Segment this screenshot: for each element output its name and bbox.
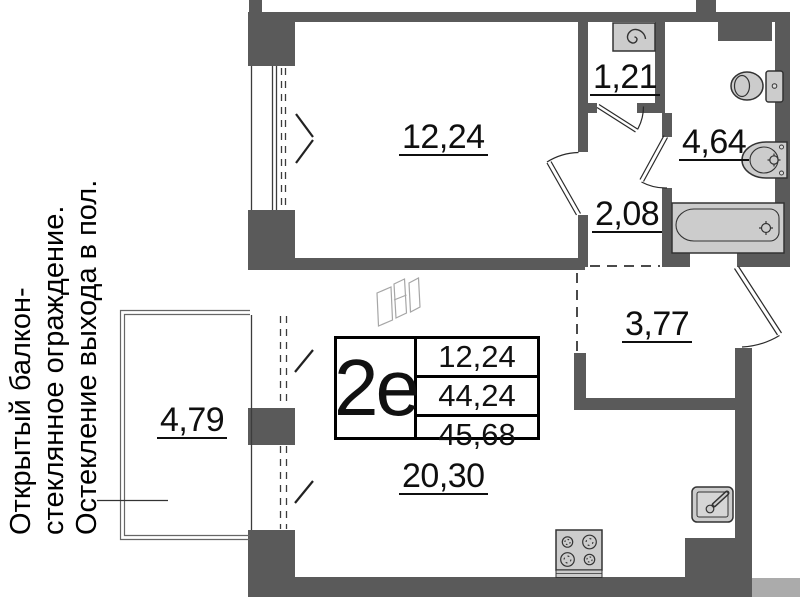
entry-bottom-wall	[574, 398, 735, 410]
bathroom-bottom-wall-left	[662, 252, 690, 267]
washing-machine-icon	[613, 23, 655, 51]
room-label-bathroom: 4,64	[679, 127, 749, 161]
window-opening-chevron-icon	[296, 114, 313, 163]
apartment-summary-table: 2е 12,24 44,24 45,68	[334, 336, 540, 440]
annotation-line: Остекление выхода в пол.	[71, 115, 104, 535]
summary-values: 12,24 44,24 45,68	[417, 339, 537, 437]
bathroom-bottom-wall-right	[737, 252, 790, 267]
entry-wall-stub	[574, 353, 586, 400]
vent-shaft-wall	[718, 22, 772, 41]
floor-plan-drawing	[0, 0, 800, 600]
room-label-living-kitchen: 20,30	[399, 461, 488, 495]
storage-door	[597, 105, 644, 133]
stove-icon	[556, 530, 602, 578]
floor-plan-page: { "plan": { "annotation_lines": [ "Откры…	[0, 0, 800, 600]
room-label-bedroom: 12,24	[399, 122, 488, 156]
entrance-door	[735, 267, 782, 348]
unit-type-label: 2е	[337, 339, 417, 437]
room-label-hall: 2,08	[592, 199, 662, 233]
toilet-icon	[731, 71, 783, 102]
room-label-storage: 1,21	[590, 62, 660, 96]
top-wall-stub-left	[249, 0, 262, 13]
balcony-annotation: Открытый балкон- стеклянное ограждение. …	[5, 115, 105, 535]
bathtub-icon	[672, 203, 784, 253]
kitchen-corner-step	[685, 538, 735, 578]
annotation-line: Открытый балкон-	[5, 115, 38, 535]
left-wall-top-block	[248, 12, 295, 66]
wardrobe-sketch-icon	[377, 278, 420, 326]
bedroom-living-wall	[295, 258, 585, 270]
hall-wall-upper	[578, 22, 588, 152]
top-wall	[248, 12, 790, 22]
storage-door-stub-right	[637, 103, 665, 113]
neighbor-wall-stub	[752, 578, 800, 597]
bathroom-wall-upper	[662, 113, 672, 137]
room-label-entry-hall: 3,77	[622, 309, 692, 343]
bottom-wall	[248, 577, 752, 597]
left-wall-mid-block	[248, 210, 295, 270]
room-label-balcony: 4,79	[157, 405, 227, 439]
bedroom-door	[547, 153, 581, 216]
balcony-opening-tick-icons	[295, 350, 313, 503]
annotation-line: стеклянное ограждение.	[38, 115, 71, 535]
summary-row-total-area: 45,68	[417, 417, 537, 453]
storage-door-stub-left	[578, 103, 597, 113]
bedroom-window	[252, 66, 286, 210]
hall-wall-lower	[578, 215, 588, 267]
left-wall-low-block	[248, 408, 295, 445]
bathroom-door	[640, 136, 668, 189]
summary-row-area: 44,24	[417, 378, 537, 417]
right-wall-lower	[735, 348, 752, 597]
summary-row-living-area: 12,24	[417, 339, 537, 378]
kitchen-sink-icon	[692, 487, 733, 522]
top-wall-stub-right	[696, 0, 716, 13]
